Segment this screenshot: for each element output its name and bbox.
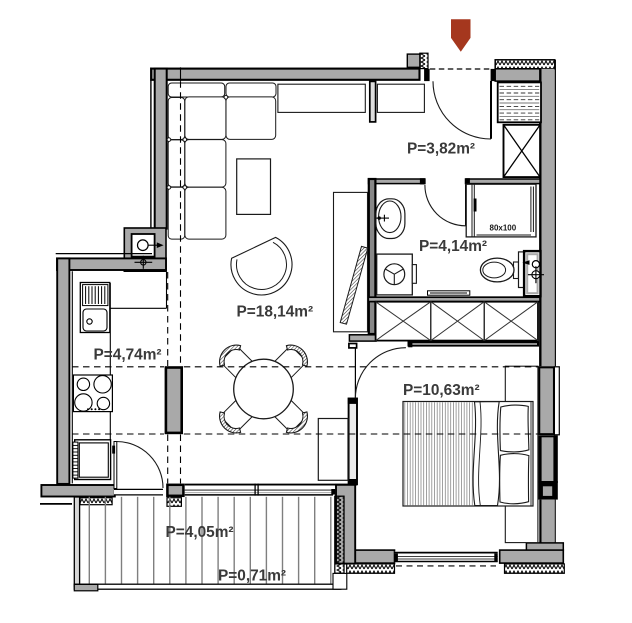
svg-text:P=4,14m²: P=4,14m² (419, 238, 487, 255)
svg-text:P=3,82m²: P=3,82m² (407, 141, 475, 158)
svg-text:P=18,14m²: P=18,14m² (237, 304, 314, 321)
svg-text:P=4,74m²: P=4,74m² (94, 347, 162, 364)
svg-text:P=0,71m²: P=0,71m² (218, 568, 286, 585)
svg-text:80x100: 80x100 (490, 224, 517, 233)
svg-text:P=10,63m²: P=10,63m² (403, 382, 480, 399)
svg-text:P=4,05m²: P=4,05m² (166, 524, 234, 541)
